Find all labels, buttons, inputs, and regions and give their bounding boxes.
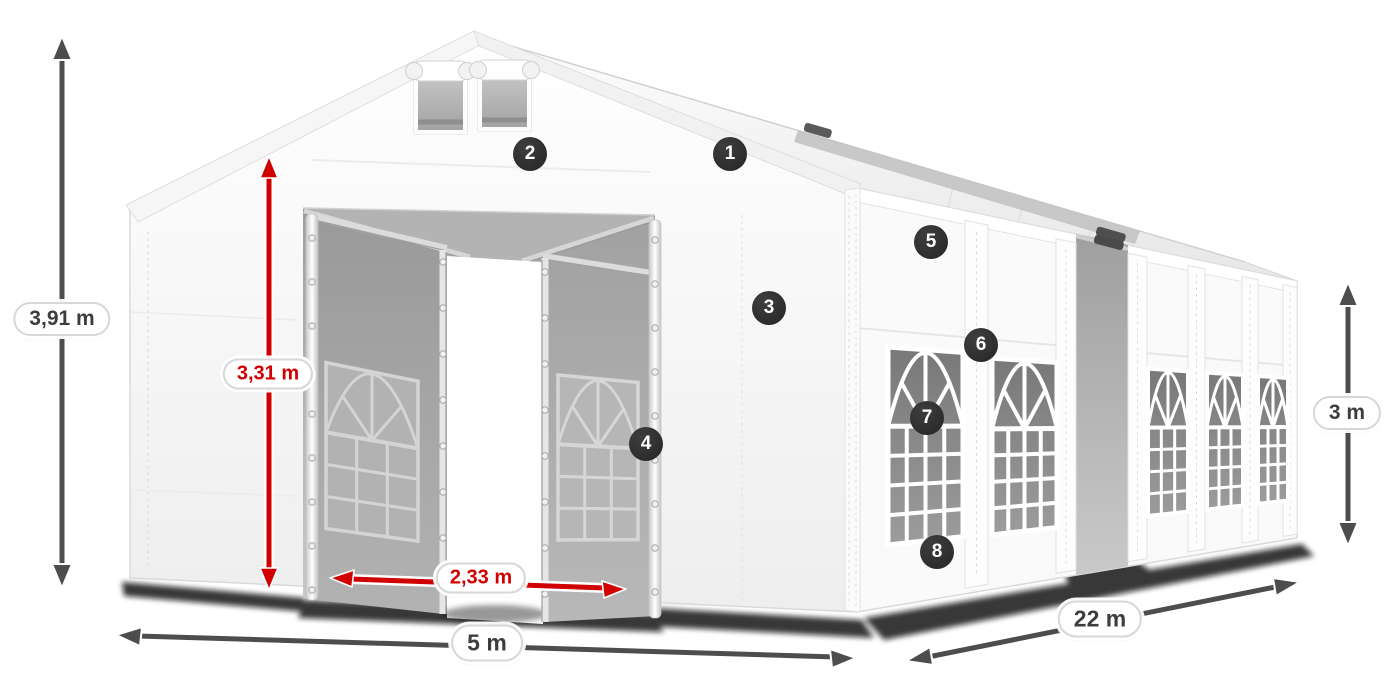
side-entrance-opening [1076,234,1128,575]
strap-knob-icon [440,443,446,449]
strap-knob-icon [652,281,658,287]
strap-knob-icon [440,535,446,541]
strap-knob-icon [309,455,315,461]
strap-knob-icon [652,589,658,595]
dim-label-length: 22 m [1058,601,1142,638]
strap-knob-icon [652,369,658,375]
strap-knob-icon [542,591,548,597]
feature-badge-2: 2 [513,137,547,171]
strap-knob-icon [309,235,315,241]
strap-knob-icon [652,501,658,507]
flap-window-print [558,375,638,540]
strap-knob-icon [309,543,315,549]
dim-label-side-height: 3 m [1313,396,1381,430]
door-flap-left [310,216,447,614]
gable-vent [406,61,476,134]
feature-badge-7: 7 [910,401,944,435]
strap-knob-icon [542,361,548,367]
strap-knob-icon [542,315,548,321]
dim-label-total-height: 3,91 m [13,302,110,336]
strap-knob-icon [309,411,315,417]
strap-knob-icon [542,407,548,413]
side-window [1207,373,1243,510]
strap-knob-icon [542,453,548,459]
tent-diagram: 1 2 3 4 5 6 7 8 3,91 m 3,31 m 2,33 m 5 m… [0,0,1400,700]
dim-label-width: 5 m [451,625,523,662]
strap-knob-icon [652,545,658,551]
strap-knob-icon [652,237,658,243]
side-window [1148,369,1188,516]
strap-knob-icon [652,325,658,331]
strap-knob-icon [309,279,315,285]
strap-knob-icon [440,305,446,311]
side-window [888,347,963,545]
entrance-post-left [306,214,318,600]
strap-knob-icon [542,545,548,551]
feature-badge-6: 6 [964,328,998,362]
strap-knob-icon [542,499,548,505]
feature-badge-1: 1 [713,137,747,171]
strap-knob-icon [542,269,548,275]
gable-vent [470,60,540,131]
feature-badge-4: 4 [629,427,663,461]
strap-knob-icon [309,499,315,505]
side-window [992,358,1057,535]
front-corner-post [845,188,860,612]
dim-label-entrance-width: 2,33 m [436,563,526,594]
flap-window-print [326,363,418,542]
strap-knob-icon [309,323,315,329]
strap-knob-icon [440,489,446,495]
feature-badge-8: 8 [920,535,954,569]
tent-illustration [0,0,1400,700]
strap-knob-icon [440,259,446,265]
dim-label-entrance-height: 3,31 m [223,359,313,390]
side-window [1258,376,1288,504]
feature-badge-5: 5 [914,225,948,259]
strap-knob-icon [440,351,446,357]
strap-knob-icon [309,587,315,593]
feature-badge-3: 3 [752,291,786,325]
strap-knob-icon [440,397,446,403]
strap-knob-icon [652,413,658,419]
